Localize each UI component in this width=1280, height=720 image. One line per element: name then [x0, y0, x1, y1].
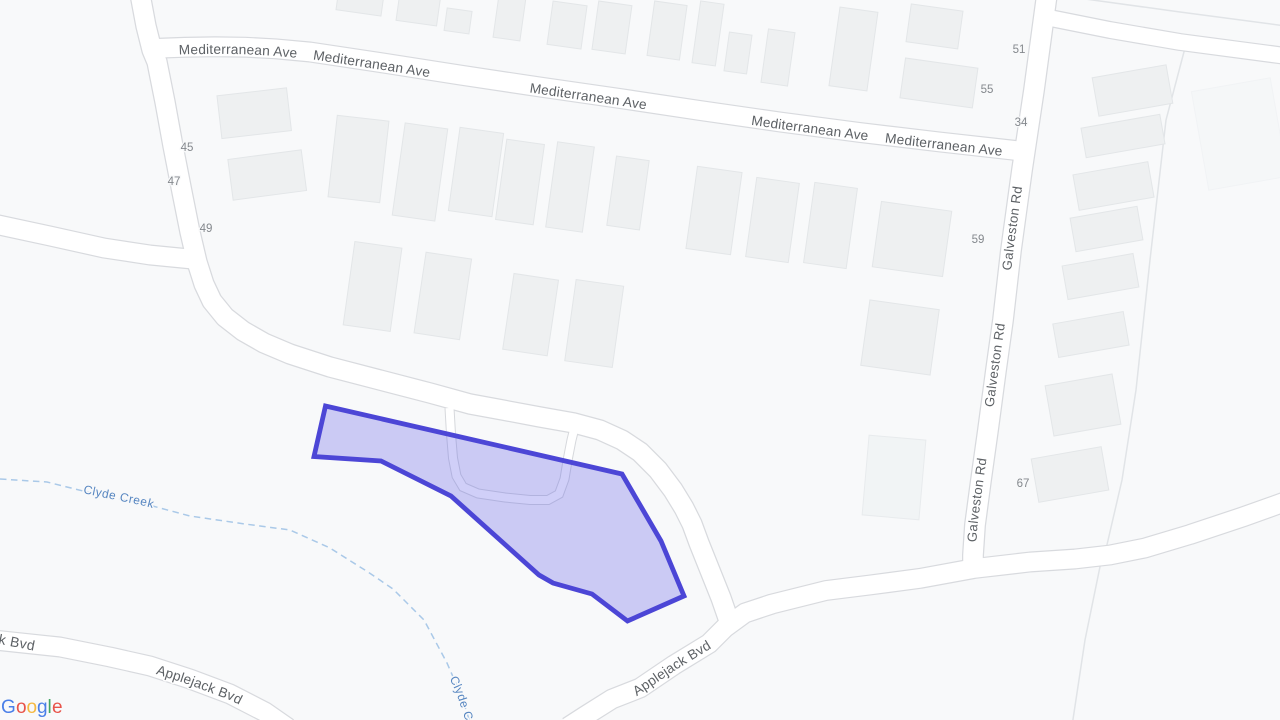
- svg-text:o: o: [27, 697, 37, 718]
- svg-text:G: G: [1, 697, 15, 718]
- svg-text:g: g: [37, 697, 47, 718]
- svg-text:e: e: [52, 697, 62, 718]
- svg-text:l: l: [48, 697, 52, 718]
- svg-text:51: 51: [1013, 44, 1026, 56]
- svg-text:47: 47: [168, 176, 181, 188]
- svg-text:55: 55: [981, 84, 994, 96]
- svg-text:59: 59: [972, 234, 985, 246]
- svg-text:o: o: [16, 697, 26, 718]
- svg-text:67: 67: [1017, 478, 1030, 490]
- svg-text:45: 45: [181, 142, 194, 154]
- svg-text:49: 49: [200, 223, 213, 235]
- svg-text:34: 34: [1015, 117, 1028, 129]
